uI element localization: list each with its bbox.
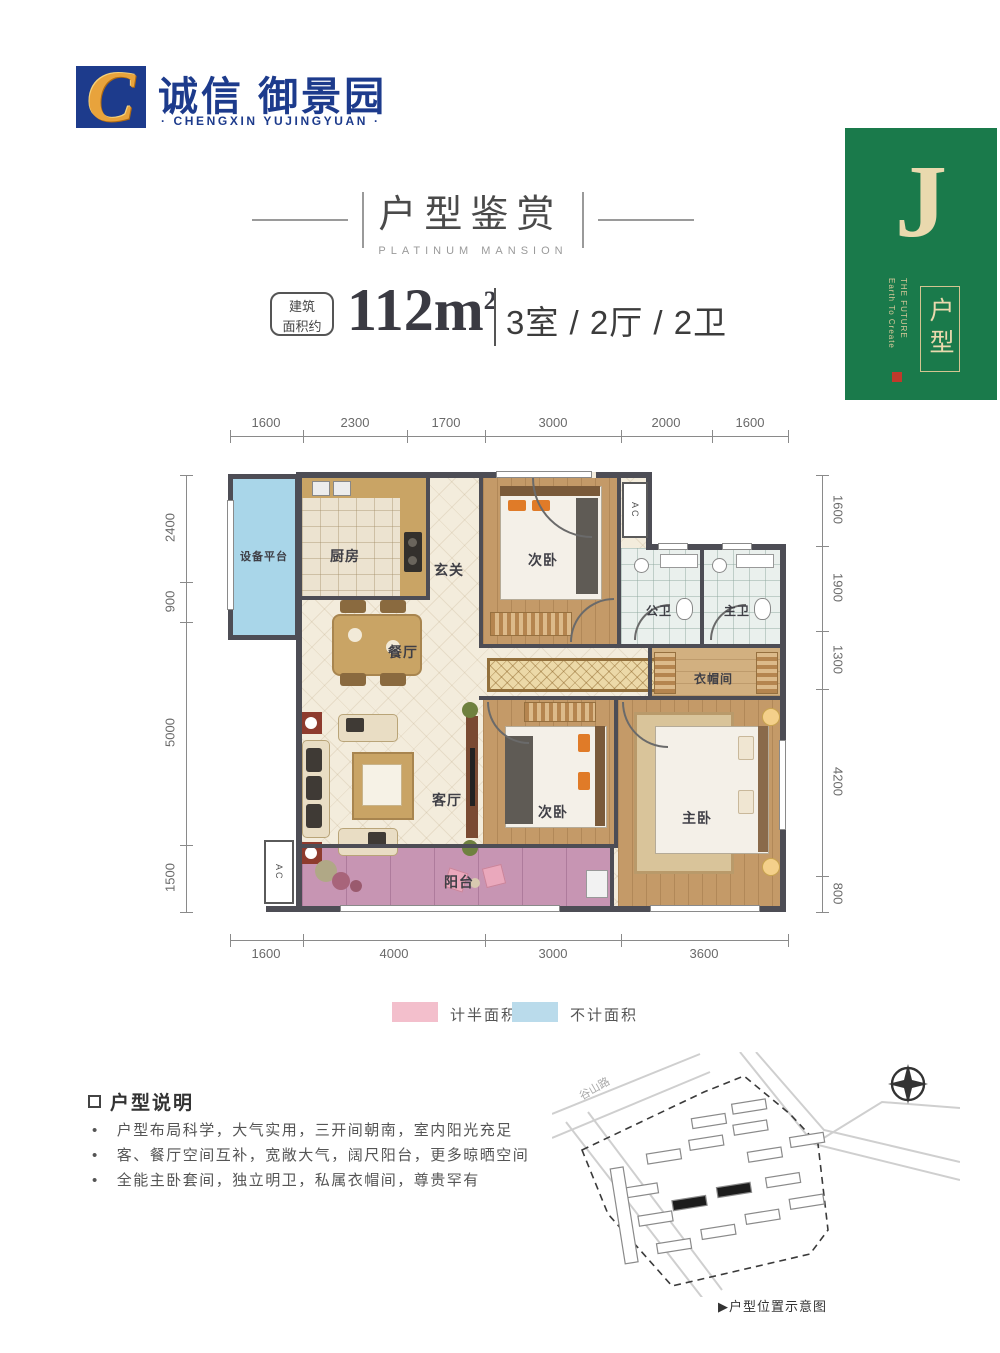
window (496, 471, 592, 478)
bullet-item: •客、餐厅空间互补，宽敞大气，阔尺阳台，更多晾晒空间 (92, 1143, 612, 1168)
room-label-dining: 餐厅 (388, 642, 418, 662)
balcony-railing (340, 905, 560, 912)
room-label-foyer: 玄关 (434, 560, 464, 580)
dim-line-bottom (230, 940, 788, 941)
dim-left-1: 2400 (163, 498, 178, 558)
kitchen-sink (312, 481, 330, 496)
dim-left-3: 5000 (163, 703, 178, 763)
sink-public (634, 558, 649, 573)
dim-top-4: 3000 (523, 415, 583, 430)
dim-bottom-1: 1600 (236, 946, 296, 961)
bed-mid-blanket (505, 736, 533, 824)
site-map: 谷山路 (552, 1052, 960, 1297)
room-count: 3室 / 2厅 / 2卫 (506, 296, 727, 344)
dim-top-2: 2300 (325, 415, 385, 430)
unit-card-slogan: Earth To Create THE FUTURE (885, 278, 909, 364)
road-label: 谷山路 (577, 1075, 612, 1103)
plant (462, 702, 478, 718)
site-buildings (603, 1091, 838, 1264)
ac-unit-bottom: AC (264, 840, 294, 904)
nightstand-lamp (762, 708, 780, 726)
room-label-cloakroom: 衣帽间 (694, 670, 733, 687)
dim-top-1: 1600 (236, 415, 296, 430)
title-bar-left (362, 192, 364, 248)
unit-letter: J (845, 142, 997, 261)
dim-left-2: 900 (163, 572, 178, 632)
brand-logo-mark: C (76, 66, 146, 128)
dining-chair (380, 600, 406, 613)
legend-swatch-not-counted (512, 1002, 558, 1022)
dim-bottom-3: 3000 (523, 946, 583, 961)
cloak-rack (654, 652, 676, 694)
room-label-living: 客厅 (432, 790, 462, 810)
tv (470, 748, 475, 806)
dim-right-1: 1600 (831, 480, 846, 540)
page-subtitle: PLATINUM MANSION (378, 245, 567, 257)
bed-master-headboard (758, 726, 768, 852)
legend-label-half-area: 计半面积 (450, 1004, 518, 1025)
area-tag: 建筑 面积约 (270, 292, 334, 336)
dim-line-right (822, 475, 823, 912)
tub-master (736, 554, 774, 568)
toilet-public (676, 598, 693, 620)
hallway-rug (487, 658, 663, 692)
area-tag-line2: 面积约 (272, 317, 332, 337)
legend-label-not-counted: 不计面积 (570, 1004, 638, 1025)
title-bar-right (582, 192, 584, 248)
sitemap-caption: ▶户型位置示意图 (718, 1296, 827, 1315)
bullet-dot-icon: • (92, 1118, 99, 1143)
unit-type-box: 户型 (920, 286, 960, 372)
wardrobe-mid (524, 702, 596, 722)
room-label-master: 主卧 (682, 808, 712, 828)
dim-top-3: 1700 (416, 415, 476, 430)
dim-bottom-4: 3600 (674, 946, 734, 961)
plant (462, 840, 478, 856)
window (779, 740, 786, 830)
spec-divider (494, 288, 496, 346)
tub-public (660, 554, 698, 568)
dim-right-3: 1300 (831, 630, 846, 690)
dim-top-5: 2000 (636, 415, 696, 430)
window (658, 543, 688, 550)
window (722, 543, 752, 550)
bullet-item: •全能主卧套间，独立明卫，私属衣帽间，尊贵罕有 (92, 1168, 612, 1193)
dining-chair (340, 673, 366, 686)
sink-master (712, 558, 727, 573)
area-tag-line1: 建筑 (272, 297, 332, 317)
bullet-dot-icon: • (92, 1143, 99, 1168)
bed-mid-headboard (595, 726, 605, 826)
seal-icon (892, 372, 902, 382)
window (650, 905, 760, 912)
square-icon (88, 1095, 101, 1108)
room-label-bath-master: 主卫 (724, 602, 750, 619)
balcony-plant (332, 872, 350, 890)
legend-swatch-half-area (392, 1002, 438, 1022)
room-label-equipment: 设备平台 (234, 548, 294, 564)
ac-unit-top: AC (622, 482, 648, 538)
room-label-bedroom-mid: 次卧 (538, 802, 568, 822)
brand-logo-c-icon: C (64, 60, 158, 134)
title-line-left (252, 219, 348, 221)
room-label-kitchen: 厨房 (330, 546, 360, 566)
dim-line-left (186, 475, 187, 912)
dim-line-top (230, 436, 788, 437)
brand-name-en: · CHENGXIN YUJINGYUAN · (161, 114, 381, 128)
floorplan-poster: C 诚信 御景园 · CHENGXIN YUJINGYUAN · 户型鉴赏 PL… (0, 0, 1000, 1353)
dim-top-6: 1600 (720, 415, 780, 430)
nightstand-lamp (762, 858, 780, 876)
dim-right-2: 1900 (831, 558, 846, 618)
window (227, 500, 234, 610)
kitchen-sink (333, 481, 351, 496)
room-label-bath-public: 公卫 (646, 602, 672, 619)
description-heading: 户型说明 (88, 1088, 194, 1115)
dining-chair (340, 600, 366, 613)
compass-icon (888, 1064, 928, 1104)
bullet-item: •户型布局科学，大气实用，三开间朝南，室内阳光充足 (92, 1118, 612, 1143)
unit-type-card: J Earth To Create THE FUTURE 户型 (845, 128, 997, 400)
room-label-balcony: 阳台 (444, 872, 474, 892)
dining-chair (380, 673, 406, 686)
wardrobe-top (490, 612, 572, 636)
dim-right-4: 4200 (831, 752, 846, 812)
balcony-plant (350, 880, 362, 892)
toilet-master (754, 598, 771, 620)
dim-right-5: 800 (831, 864, 846, 924)
area-value: 112m2 (347, 276, 497, 345)
dim-left-4: 1500 (163, 848, 178, 908)
unit-type-label: 户型 (921, 293, 959, 365)
section-title: 户型鉴赏 PLATINUM MANSION (123, 183, 823, 257)
dim-bottom-2: 4000 (364, 946, 424, 961)
washing-machine (586, 870, 608, 898)
title-line-right (598, 219, 694, 221)
room-label-bedroom-top: 次卧 (528, 550, 558, 570)
description-bullets: •户型布局科学，大气实用，三开间朝南，室内阳光充足 •客、餐厅空间互补，宽敞大气… (92, 1118, 612, 1193)
exterior-notch (652, 458, 792, 544)
cloak-rack (756, 652, 778, 694)
page-title: 户型鉴赏 (378, 183, 567, 238)
bullet-dot-icon: • (92, 1168, 99, 1193)
